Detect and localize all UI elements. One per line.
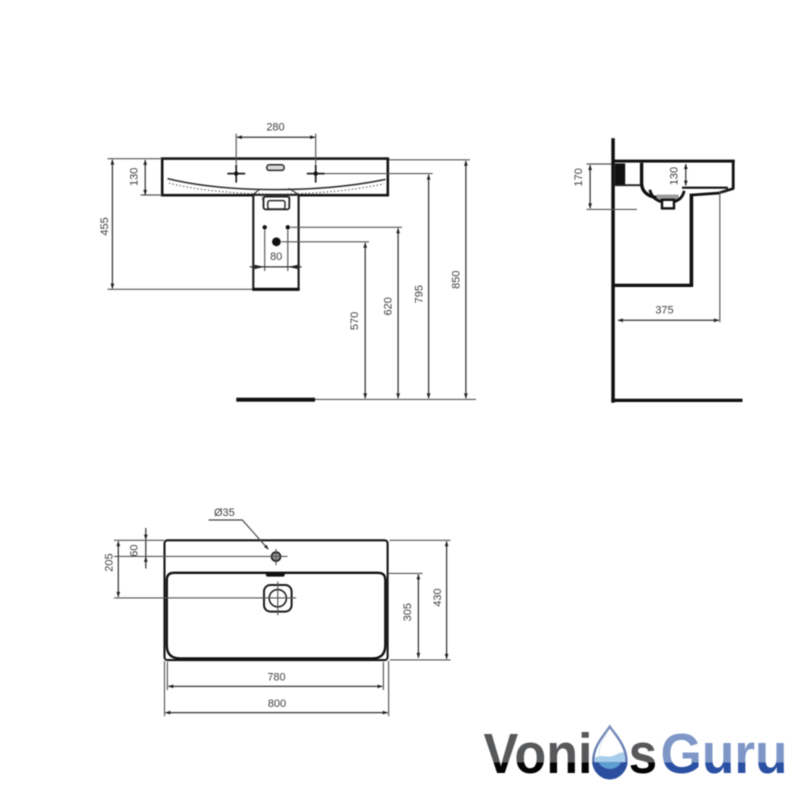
svg-text:280: 280	[266, 122, 284, 134]
svg-text:850: 850	[451, 271, 463, 289]
svg-text:430: 430	[432, 588, 444, 606]
svg-text:305: 305	[402, 603, 414, 621]
svg-text:60: 60	[128, 544, 140, 556]
svg-text:455: 455	[99, 217, 111, 235]
svg-text:205: 205	[104, 553, 116, 571]
svg-text:s: s	[629, 722, 658, 785]
svg-text:570: 570	[349, 312, 361, 330]
svg-text:Voni: Voni	[484, 722, 593, 785]
svg-text:Guru: Guru	[661, 722, 788, 785]
svg-text:130: 130	[129, 168, 141, 186]
svg-text:795: 795	[414, 285, 426, 303]
svg-text:375: 375	[655, 305, 673, 317]
svg-text:80: 80	[270, 251, 282, 263]
svg-text:Ø35: Ø35	[214, 507, 235, 519]
svg-text:780: 780	[267, 672, 285, 684]
svg-text:130: 130	[669, 167, 681, 185]
svg-text:800: 800	[268, 698, 286, 710]
svg-text:170: 170	[573, 168, 585, 186]
svg-text:620: 620	[383, 297, 395, 315]
